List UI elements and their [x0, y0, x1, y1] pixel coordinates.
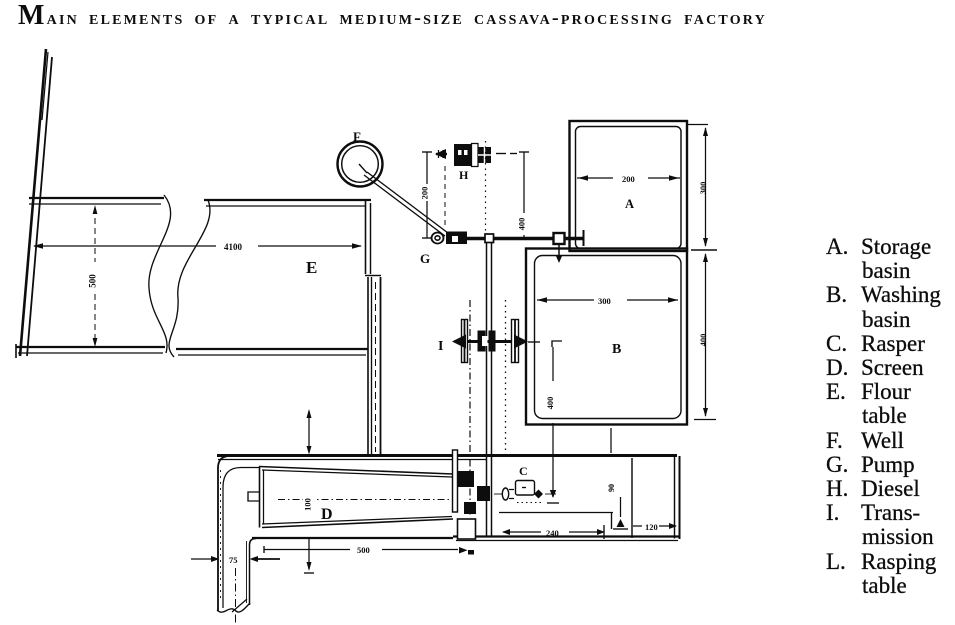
svg-text:500: 500	[88, 274, 98, 288]
svg-text:F: F	[353, 129, 361, 144]
svg-text:90: 90	[607, 484, 616, 492]
svg-text:400: 400	[545, 397, 555, 410]
svg-text:500: 500	[357, 545, 370, 555]
svg-text:B: B	[612, 342, 621, 357]
svg-text:H: H	[459, 168, 469, 182]
svg-text:A: A	[625, 197, 634, 211]
svg-text:200: 200	[420, 187, 430, 200]
svg-text:D: D	[321, 506, 333, 523]
svg-text:200: 200	[622, 174, 635, 184]
svg-text:75: 75	[229, 555, 238, 565]
svg-text:4100: 4100	[224, 242, 243, 252]
svg-text:240: 240	[546, 528, 559, 538]
svg-text:300: 300	[598, 296, 611, 306]
svg-text:100: 100	[303, 498, 313, 511]
svg-text:120: 120	[645, 522, 658, 532]
svg-text:E: E	[306, 258, 317, 277]
svg-text:300: 300	[698, 182, 708, 195]
svg-text:400: 400	[698, 334, 708, 347]
svg-text:C: C	[519, 464, 528, 478]
svg-text:400: 400	[517, 218, 527, 231]
svg-text:I: I	[438, 339, 443, 354]
svg-text:G: G	[420, 251, 430, 266]
